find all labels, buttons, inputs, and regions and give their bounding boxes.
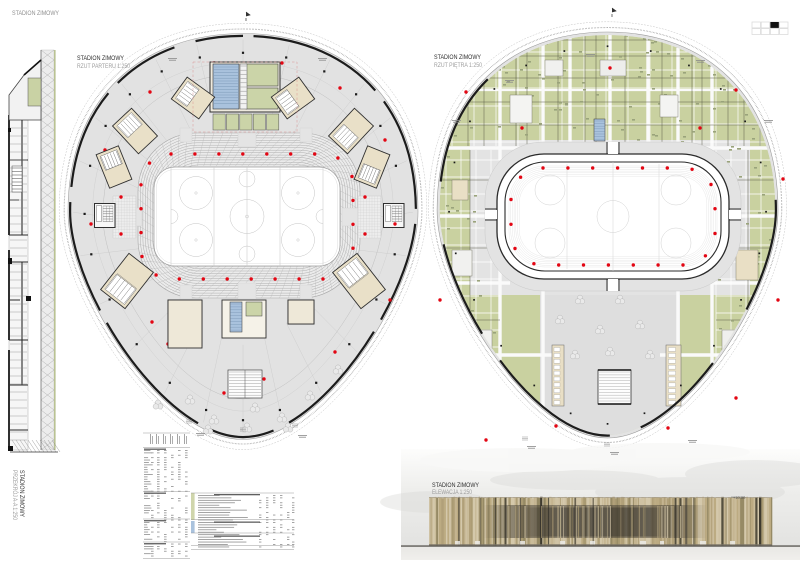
svg-text:RZUT PARTERU 1:250: RZUT PARTERU 1:250 (77, 63, 130, 70)
svg-text:RZUT PIĘTRA 1:250: RZUT PIĘTRA 1:250 (434, 62, 482, 69)
svg-text:STADION ZIMOWY: STADION ZIMOWY (77, 55, 125, 62)
svg-text:ELEWACJA 1:250: ELEWACJA 1:250 (432, 489, 472, 496)
svg-text:PRZEKRÓJ A-A 1:250: PRZEKRÓJ A-A 1:250 (11, 470, 18, 520)
svg-text:STADION ZIMOWY: STADION ZIMOWY (18, 470, 25, 518)
svg-text:STADION ZIMOWY: STADION ZIMOWY (432, 482, 480, 489)
svg-text:+10.00: +10.00 (733, 495, 746, 500)
svg-text:STADION ZIMOWY: STADION ZIMOWY (434, 54, 482, 61)
svg-text:STADION ZIMOWY: STADION ZIMOWY (12, 10, 59, 17)
